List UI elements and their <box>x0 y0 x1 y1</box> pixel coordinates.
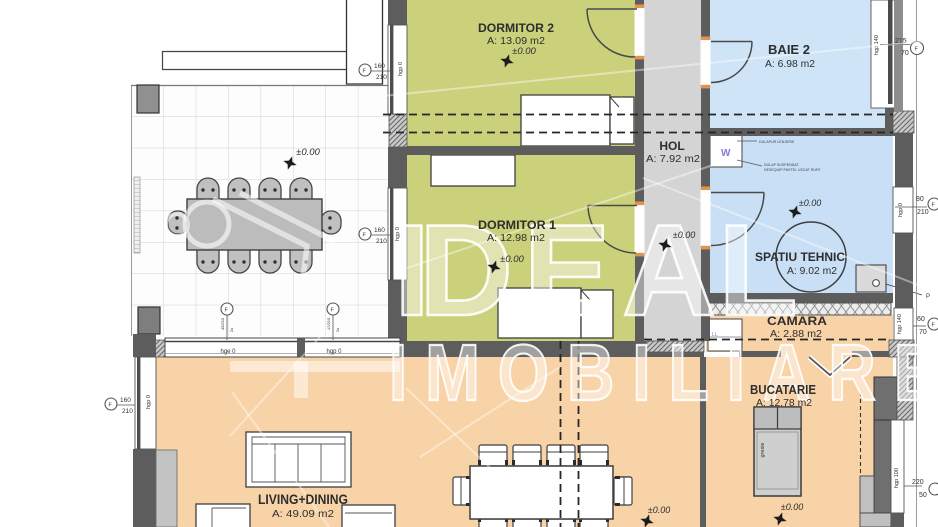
svg-text:±0.00: ±0.00 <box>512 46 536 57</box>
svg-text:±0.00: ±0.00 <box>799 198 821 208</box>
svg-text:hge 0: hge 0 <box>220 349 236 355</box>
svg-text:SPATIU TEHNIC: SPATIU TEHNIC <box>755 250 845 264</box>
svg-text:DULAPUR LENJERIE: DULAPUR LENJERIE <box>759 140 795 144</box>
svg-text:LIVING+DINING: LIVING+DINING <box>258 491 348 507</box>
svg-text:80: 80 <box>916 196 924 203</box>
svg-text:DORMITOR 1: DORMITOR 1 <box>478 218 556 232</box>
svg-text:DULAP SUSPENDAT,: DULAP SUSPENDAT, <box>764 163 799 167</box>
svg-text:70: 70 <box>901 50 909 57</box>
svg-text:60: 60 <box>917 316 925 323</box>
svg-text:BUCATARIE: BUCATARIE <box>750 383 816 397</box>
svg-text:IMOBILIARE: IMOBILIARE <box>389 328 938 418</box>
svg-text:50: 50 <box>919 492 927 499</box>
svg-text:210: 210 <box>122 408 133 415</box>
svg-text:HOL: HOL <box>659 139 684 153</box>
svg-text:160: 160 <box>374 63 385 70</box>
svg-text:A: A <box>622 197 716 343</box>
svg-text:160: 160 <box>120 397 131 404</box>
svg-text:210: 210 <box>917 209 929 216</box>
svg-text:160: 160 <box>374 227 385 234</box>
svg-text:±0.00: ±0.00 <box>500 254 524 265</box>
svg-text:±0.00: ±0.00 <box>648 505 670 515</box>
svg-text:DORMITOR 2: DORMITOR 2 <box>478 21 554 35</box>
svg-text:A: 7.92 m2: A: 7.92 m2 <box>646 153 700 165</box>
svg-text:W: W <box>721 148 731 159</box>
svg-text:2x: 2x <box>229 328 234 332</box>
svg-text:2x: 2x <box>335 328 340 332</box>
svg-text:A: 6.98 m2: A: 6.98 m2 <box>765 58 815 70</box>
svg-text:210: 210 <box>376 238 387 245</box>
svg-text:±0.00: ±0.00 <box>296 147 320 158</box>
svg-text:A: 12.78 m2: A: 12.78 m2 <box>756 397 812 409</box>
svg-text:hgp 0: hgp 0 <box>146 395 152 409</box>
svg-text:hgp 0: hgp 0 <box>398 62 404 76</box>
svg-text:hgp 100: hgp 100 <box>894 468 900 488</box>
svg-text:±0.00: ±0.00 <box>781 502 803 512</box>
svg-text:A: 9.02 m2: A: 9.02 m2 <box>787 265 837 277</box>
svg-text:P: P <box>926 294 930 300</box>
svg-text:A: 2.88 m2: A: 2.88 m2 <box>770 329 822 340</box>
svg-text:BAIE 2: BAIE 2 <box>768 43 810 57</box>
svg-text:DESEQUIP PASTEL USCAT RUFE: DESEQUIP PASTEL USCAT RUFE <box>764 168 821 172</box>
svg-text:A: 12.98 m2: A: 12.98 m2 <box>487 232 545 244</box>
svg-text:A: 49.09 m2: A: 49.09 m2 <box>272 508 334 520</box>
svg-text:hgp 0: hgp 0 <box>898 203 904 217</box>
svg-text:hgp 0: hgp 0 <box>326 349 342 355</box>
svg-text:gresie: gresie <box>760 443 766 458</box>
svg-text:210: 210 <box>376 74 387 81</box>
svg-text:±0.00: ±0.00 <box>673 230 695 240</box>
svg-text:45/210: 45/210 <box>220 317 225 330</box>
svg-text:220: 220 <box>912 479 924 486</box>
svg-text:CAMARA: CAMARA <box>767 314 827 328</box>
